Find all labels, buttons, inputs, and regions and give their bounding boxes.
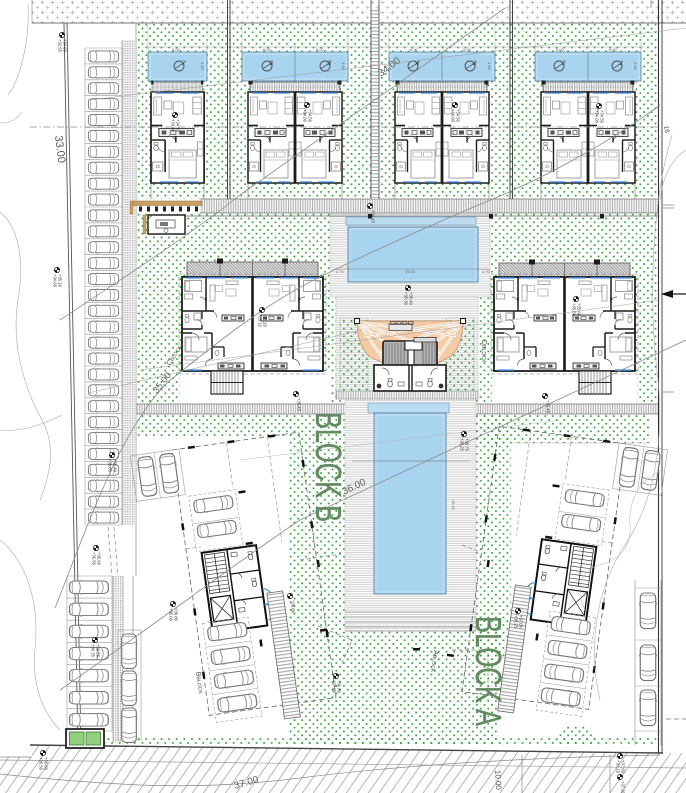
- svg-text:+36.86: +36.86: [291, 600, 296, 614]
- svg-text:3.60: 3.60: [341, 62, 346, 71]
- svg-text:3.60: 3.60: [633, 62, 638, 71]
- svg-text:+34.45: +34.45: [371, 210, 376, 224]
- svg-text:+36.00: +36.00: [169, 608, 174, 622]
- svg-text:+37.10: +37.10: [616, 760, 621, 774]
- svg-text:15.00: 15.00: [405, 269, 416, 274]
- svg-text:DBLOCK: DBLOCK: [480, 340, 487, 363]
- svg-text:6.00: 6.00: [463, 47, 472, 52]
- svg-text:+34.00: +34.00: [595, 110, 600, 124]
- svg-text:6.00: 6.00: [263, 47, 272, 52]
- svg-text:+35.45: +35.45: [546, 400, 551, 414]
- svg-text:25.00: 25.00: [451, 500, 456, 511]
- svg-text:+37.30: +37.30: [621, 781, 626, 793]
- svg-text:+34.00: +34.00: [451, 109, 456, 123]
- svg-text:+35.50: +35.50: [572, 303, 577, 317]
- svg-text:6.00: 6.00: [172, 47, 181, 52]
- svg-text:+32.50: +32.50: [58, 39, 63, 53]
- svg-text:+34.00: +34.00: [303, 109, 308, 123]
- svg-text:+36.50: +36.50: [39, 757, 44, 771]
- svg-text:+37.00: +37.00: [332, 680, 337, 694]
- svg-text:3.60: 3.60: [200, 62, 205, 71]
- svg-text:BLOCK A: BLOCK A: [468, 616, 509, 726]
- svg-text:+35.10: +35.10: [258, 314, 263, 328]
- svg-text:+36.35: +36.35: [91, 644, 96, 658]
- svg-text:3.60: 3.60: [487, 62, 492, 71]
- svg-text:+36.00: +36.00: [108, 459, 113, 473]
- svg-text:+36.25: +36.25: [514, 615, 519, 629]
- svg-text:+36.50: +36.50: [92, 552, 97, 566]
- svg-text:10.00: 10.00: [493, 770, 503, 791]
- svg-text:+35.30: +35.30: [404, 292, 409, 306]
- svg-text:6.00: 6.00: [316, 47, 325, 52]
- svg-text:BLOCK B: BLOCK B: [308, 412, 349, 522]
- svg-text:2.70: 2.70: [482, 269, 491, 274]
- svg-text:+34.00: +34.00: [53, 274, 58, 288]
- svg-text:6.00: 6.00: [556, 47, 565, 52]
- svg-text:6.00: 6.00: [410, 47, 419, 52]
- svg-text:+35.45: +35.45: [297, 398, 302, 412]
- svg-text:+36.25: +36.25: [460, 438, 465, 452]
- svg-text:+33.80: +33.80: [171, 119, 176, 133]
- svg-text:2.70: 2.70: [336, 269, 345, 274]
- svg-text:6.00: 6.00: [609, 47, 618, 52]
